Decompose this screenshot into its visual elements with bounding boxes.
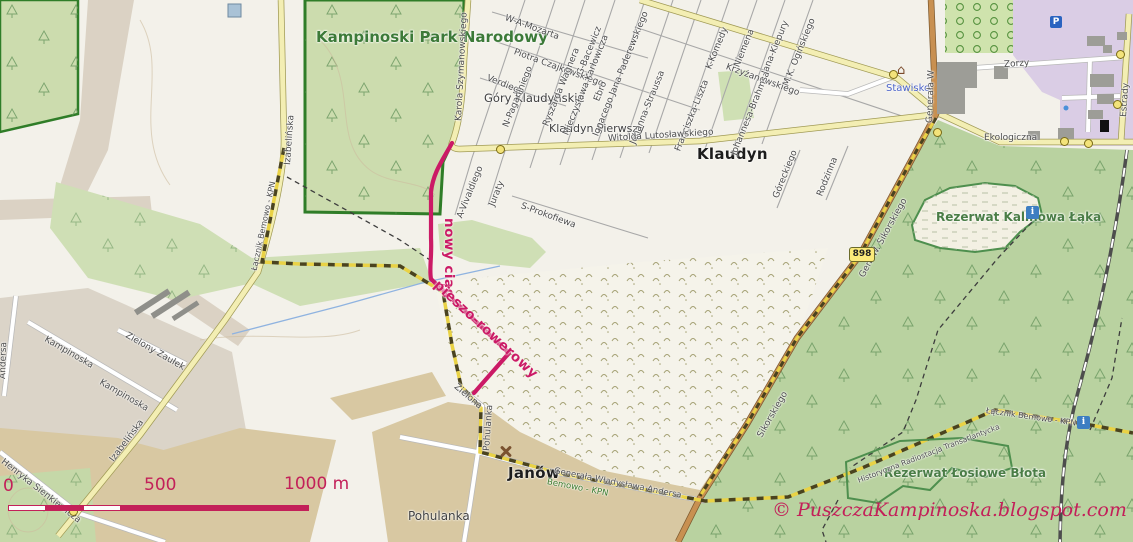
- street-andersa-left: Andersa: [0, 342, 9, 379]
- mini-roundabout-icon: [1084, 139, 1093, 148]
- park-name-label: Kampinoski Park Narodowy: [316, 28, 434, 47]
- gory-klaudynskie-label: Góry Klaudyńskie: [484, 91, 585, 105]
- kalinowa-reserve-label: Rezerwat Kalinowa Łąka: [936, 210, 1032, 224]
- mini-roundabout-icon: [933, 128, 942, 137]
- info-icon-2: i: [1077, 416, 1090, 429]
- battle-site-icon: [498, 443, 514, 459]
- road-shield-898: 898: [849, 247, 875, 262]
- orchard-area: [945, 0, 1013, 53]
- museum-icon: ⌂: [897, 64, 905, 77]
- parking-icon: P: [1050, 16, 1062, 28]
- stawisko-label: Stawisko: [886, 83, 930, 94]
- map-canvas: Kampinoski Park Narodowy Góry Klaudyński…: [0, 0, 1133, 542]
- street-zorzy: Zorzy: [1004, 58, 1030, 70]
- pohulanka-label: Pohulanka: [408, 509, 470, 523]
- scale-label-500: 500: [144, 475, 176, 495]
- mini-roundabout-icon: [1060, 137, 1069, 146]
- mini-roundabout-icon: [496, 145, 505, 154]
- mini-roundabout-icon: [1113, 100, 1122, 109]
- copyright-watermark: © PuszczaKampinoska.blogspot.com: [772, 499, 1127, 521]
- info-icon-1: i: [1026, 206, 1039, 219]
- scale-label-0: 0: [3, 476, 14, 496]
- scale-label-1000: 1000 m: [284, 474, 349, 494]
- street-ekologiczna: Ekologiczna: [984, 133, 1037, 143]
- mini-roundabout-icon: [889, 70, 898, 79]
- street-generala-w: Generała W: [925, 70, 937, 123]
- scale-bar: [8, 505, 309, 511]
- mini-roundabout-icon: [1116, 50, 1125, 59]
